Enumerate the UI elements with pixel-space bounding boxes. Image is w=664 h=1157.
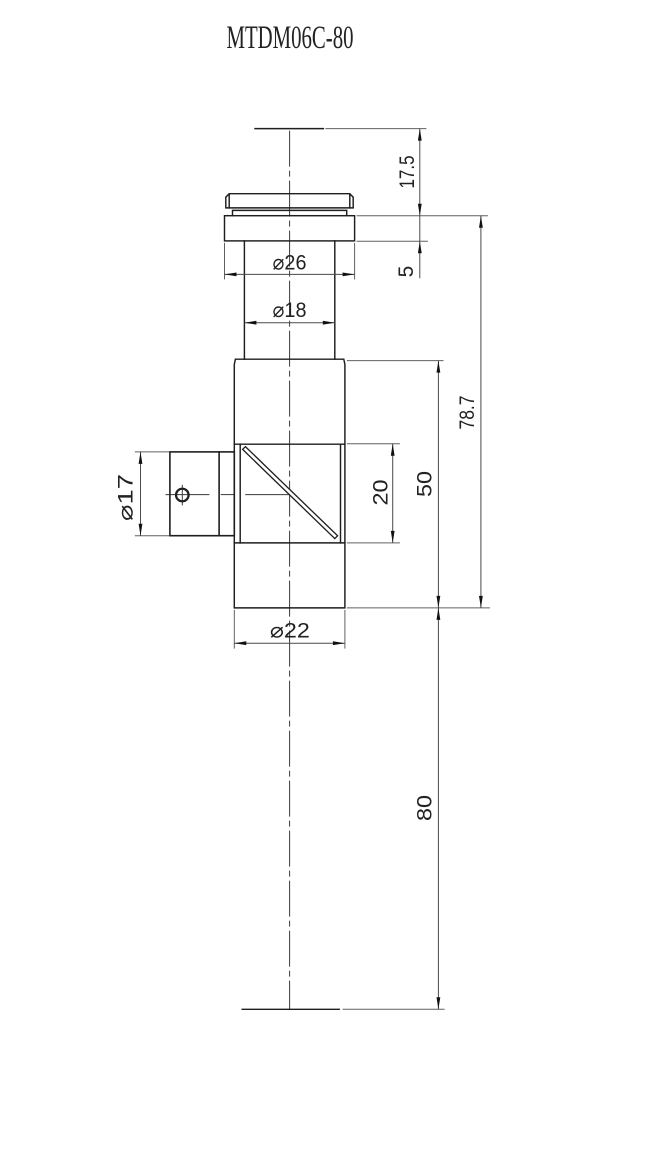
svg-text:⌀18: ⌀18 [273, 299, 307, 322]
svg-text:⌀22: ⌀22 [270, 620, 310, 643]
svg-text:17.5: 17.5 [396, 156, 419, 189]
svg-text:20: 20 [370, 480, 393, 506]
svg-text:⌀26: ⌀26 [273, 252, 307, 275]
svg-text:MTDM06C-80: MTDM06C-80 [227, 20, 354, 56]
svg-text:⌀17: ⌀17 [115, 474, 138, 521]
svg-text:5: 5 [395, 266, 418, 278]
svg-text:50: 50 [414, 471, 437, 497]
svg-text:80: 80 [414, 795, 437, 821]
svg-text:78.7: 78.7 [456, 396, 479, 430]
